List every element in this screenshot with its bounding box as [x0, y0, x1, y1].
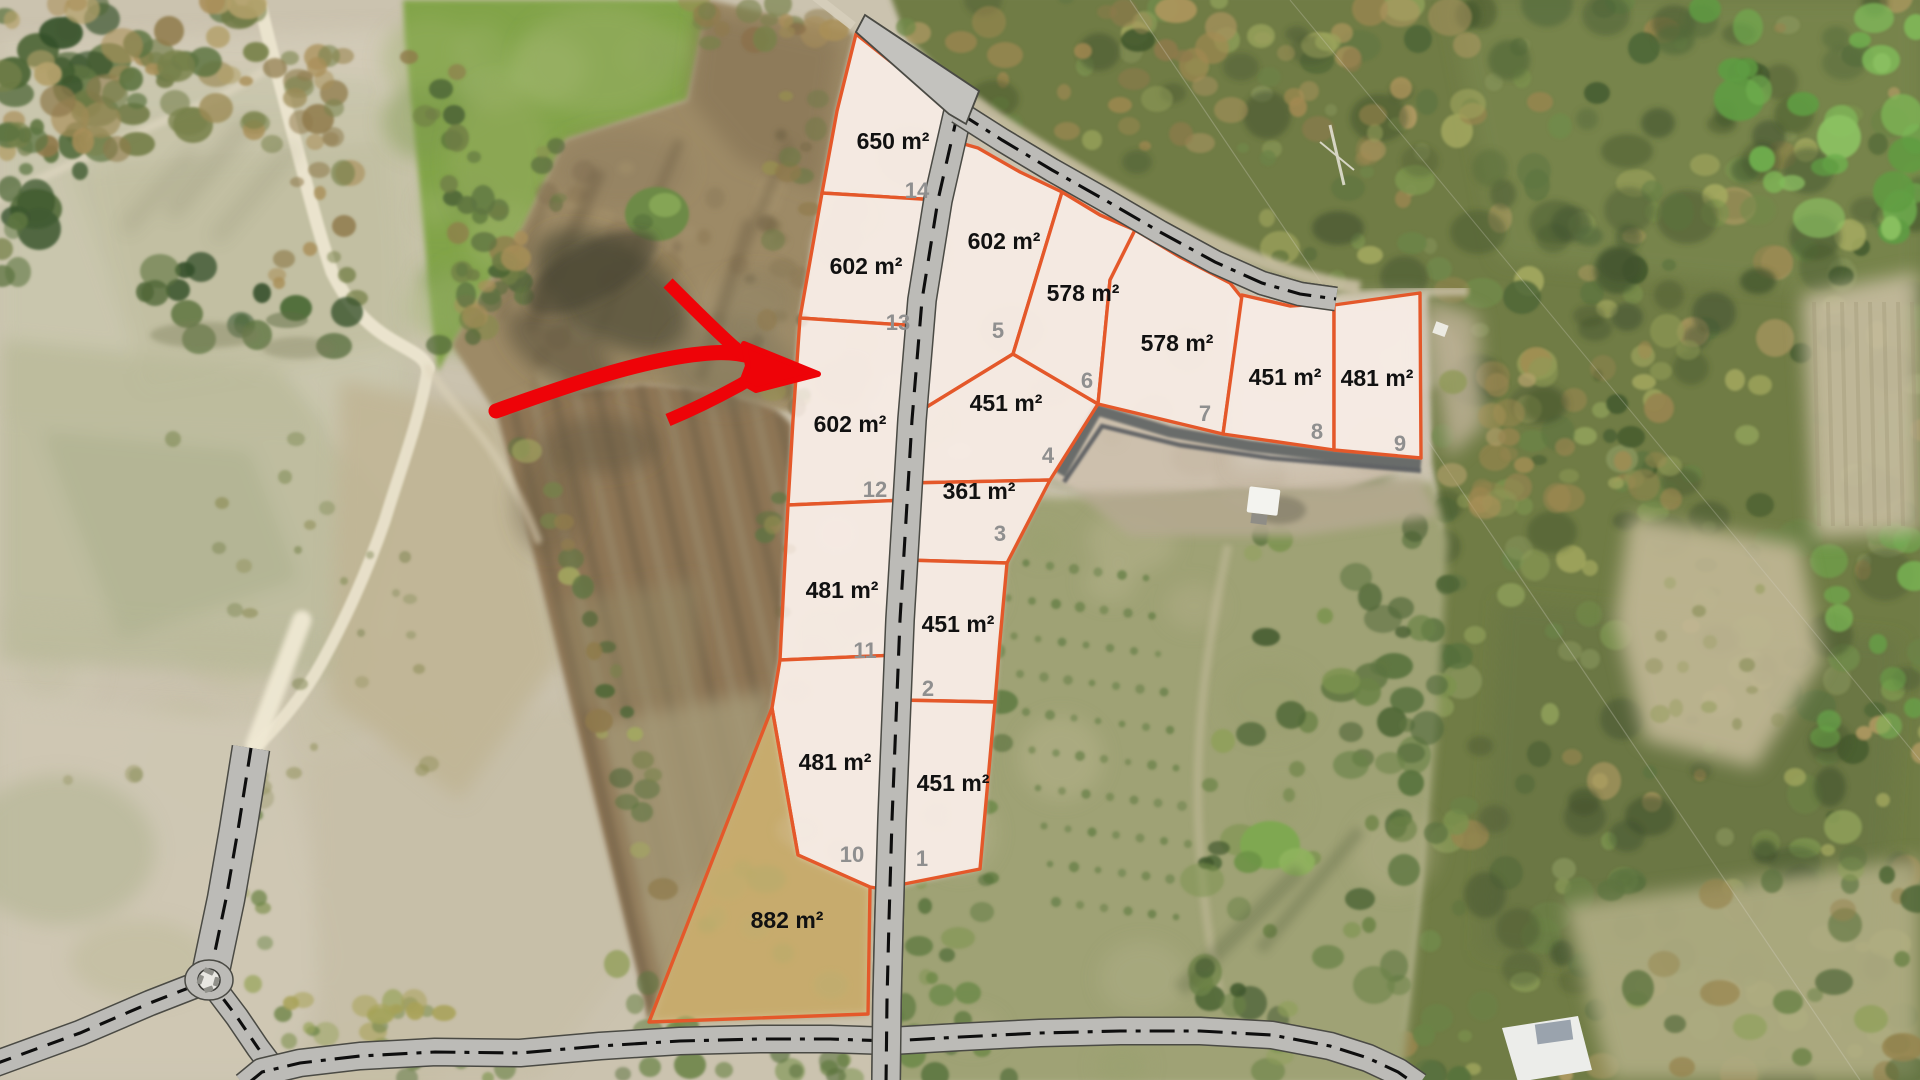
- svg-text:361 m²: 361 m²: [943, 478, 1016, 504]
- svg-text:650 m²: 650 m²: [857, 128, 930, 154]
- svg-text:12: 12: [863, 477, 887, 502]
- svg-text:578 m²: 578 m²: [1047, 280, 1120, 306]
- svg-text:451 m²: 451 m²: [970, 390, 1043, 416]
- svg-text:1: 1: [916, 846, 928, 871]
- svg-text:11: 11: [853, 638, 876, 663]
- svg-text:451 m²: 451 m²: [1249, 364, 1322, 390]
- svg-text:4: 4: [1042, 443, 1055, 468]
- svg-text:7: 7: [1199, 401, 1211, 426]
- svg-text:6: 6: [1081, 368, 1093, 393]
- svg-text:602 m²: 602 m²: [814, 411, 887, 437]
- svg-text:3: 3: [994, 521, 1006, 546]
- svg-text:481 m²: 481 m²: [806, 577, 879, 603]
- svg-text:481 m²: 481 m²: [1341, 365, 1414, 391]
- svg-text:451 m²: 451 m²: [922, 611, 995, 637]
- svg-text:481 m²: 481 m²: [799, 749, 872, 775]
- svg-text:5: 5: [992, 318, 1004, 343]
- svg-text:9: 9: [1394, 431, 1406, 456]
- svg-text:882 m²: 882 m²: [751, 907, 824, 933]
- svg-text:578 m²: 578 m²: [1141, 330, 1214, 356]
- svg-text:602 m²: 602 m²: [830, 253, 903, 279]
- svg-text:451 m²: 451 m²: [917, 770, 990, 796]
- svg-text:10: 10: [840, 842, 864, 867]
- svg-text:8: 8: [1311, 419, 1323, 444]
- svg-text:14: 14: [905, 178, 930, 203]
- svg-text:2: 2: [922, 676, 934, 701]
- svg-text:602 m²: 602 m²: [968, 228, 1041, 254]
- svg-text:13: 13: [886, 310, 910, 335]
